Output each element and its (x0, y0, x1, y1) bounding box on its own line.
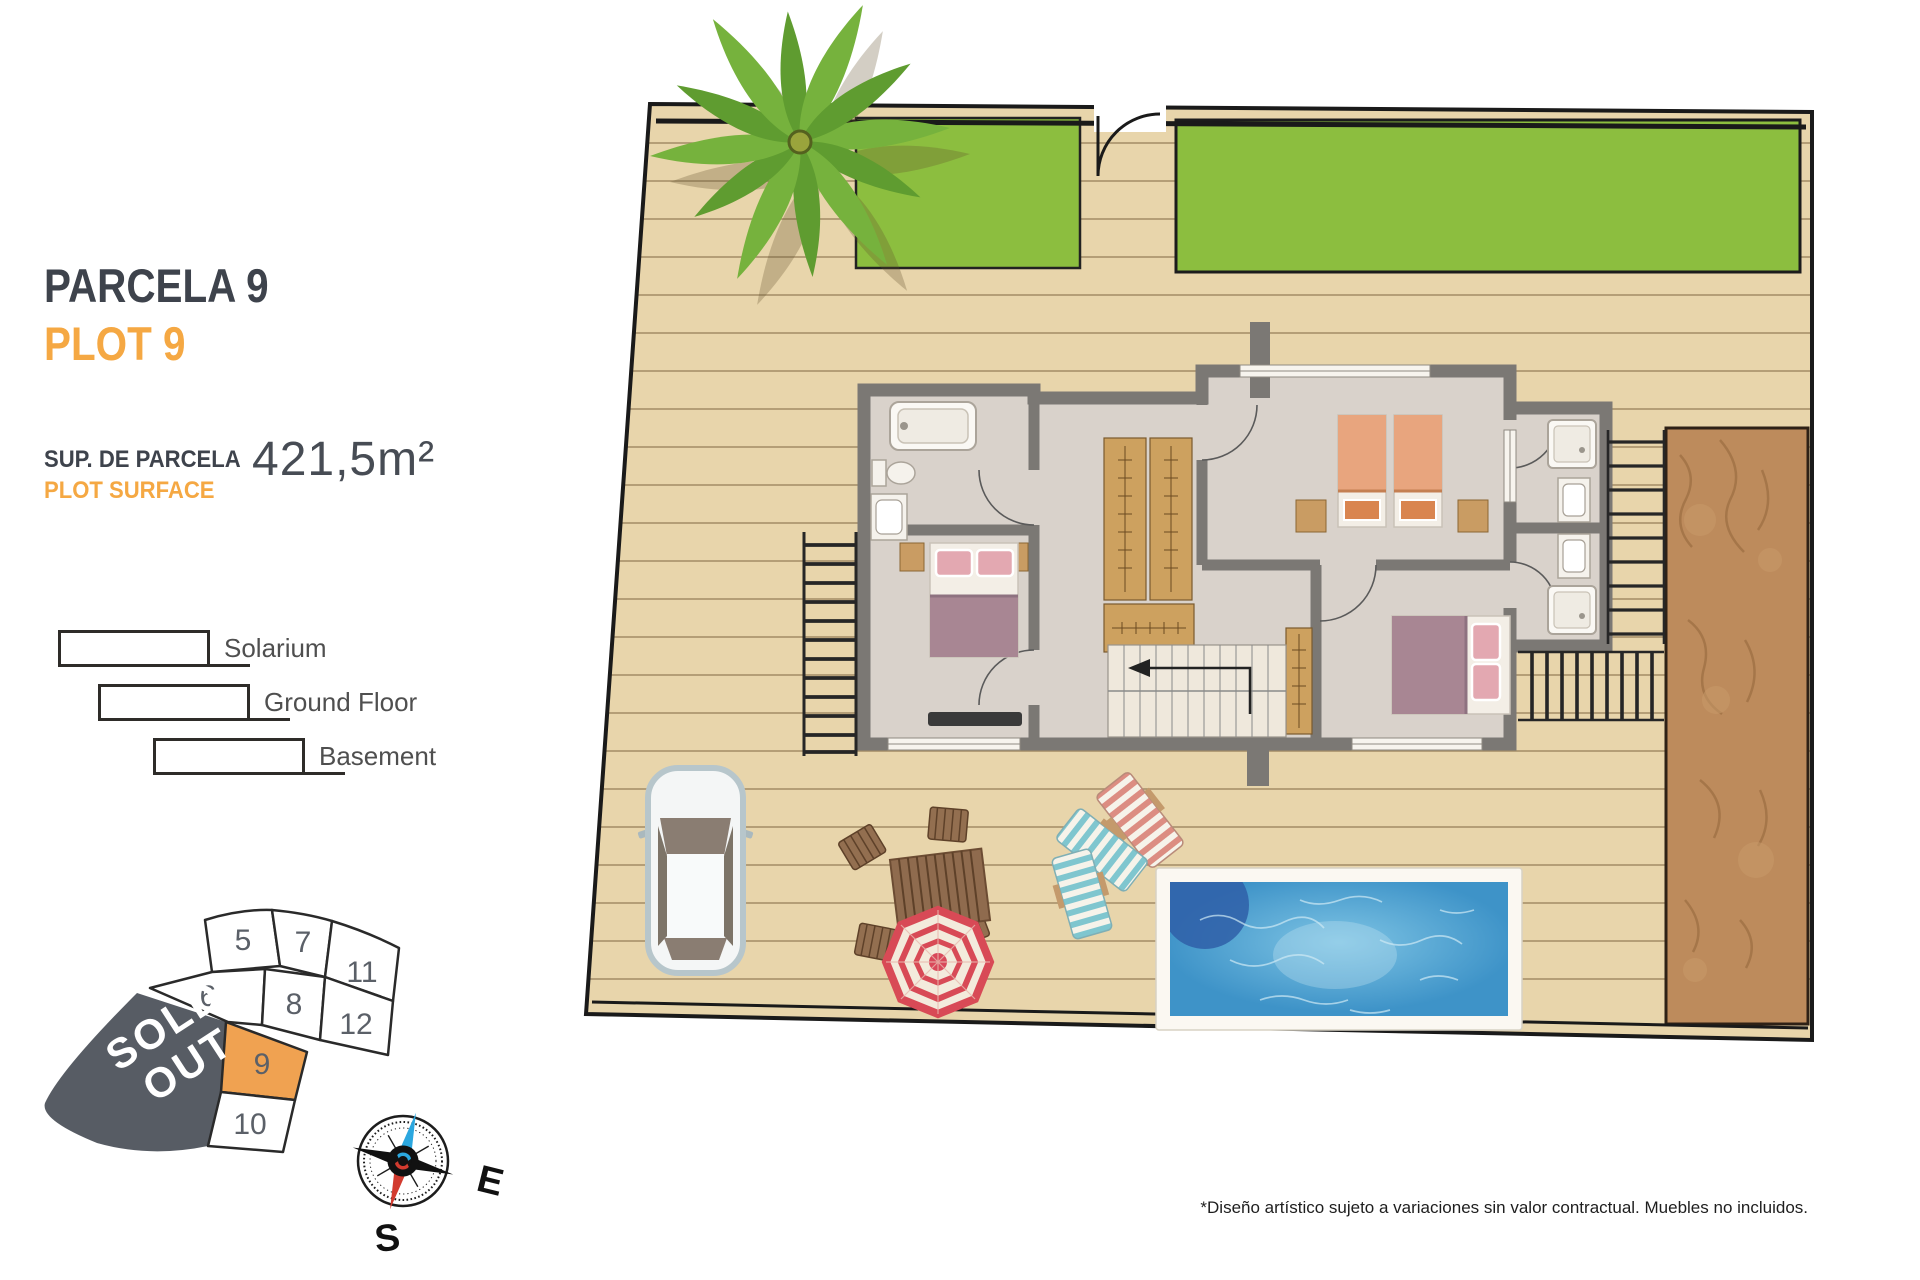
house (864, 322, 1606, 786)
dirt-area (1666, 428, 1808, 1024)
plot-minimap: 5 7 11 6 8 12 9 10 SOLD OUT (45, 910, 399, 1152)
legend-box-basement (153, 738, 305, 775)
compass-south-label: S (373, 1217, 403, 1261)
minimap-label-8: 8 (286, 988, 303, 1021)
disclaimer-text: *Diseño artístico sujeto a variaciones s… (1200, 1198, 1808, 1218)
page-title: PARCELA 9 (44, 258, 269, 313)
parasol (886, 910, 990, 1014)
twin-bed-1 (1338, 415, 1386, 527)
legend-line-solarium (58, 664, 250, 667)
legend-line-ground-floor (98, 718, 290, 721)
wall-pillar-bottom (1247, 744, 1269, 786)
legend-label-ground-floor: Ground Floor (264, 684, 417, 721)
surface-label-en: PLOT SURFACE (44, 477, 215, 505)
minimap-label-10: 10 (233, 1108, 266, 1141)
car (637, 768, 753, 973)
minimap-label-11: 11 (346, 956, 377, 989)
brochure-page: 5 7 11 6 8 12 9 10 SOLD OUT (0, 0, 1920, 1280)
internal-staircase (1108, 645, 1286, 737)
legend-box-solarium (58, 630, 210, 667)
legend-label-solarium: Solarium (224, 630, 327, 667)
legend-label-basement: Basement (319, 738, 436, 775)
minimap-label-7: 7 (295, 926, 312, 959)
minimap-label-12: 12 (339, 1008, 372, 1041)
palm-trunk (789, 131, 811, 153)
car-windshield (660, 818, 731, 856)
minimap-label-9: 9 (254, 1048, 271, 1081)
legend-line-basement (153, 772, 345, 775)
minimap-label-5: 5 (235, 924, 252, 957)
legend-box-ground-floor (98, 684, 250, 721)
surface-value: 421,5m² (252, 432, 435, 487)
tv-console (928, 712, 1022, 726)
twin-bed-2 (1394, 415, 1442, 527)
compass-east-label: E (473, 1158, 508, 1205)
wall-pillar-top (1250, 322, 1270, 398)
surface-label-es: SUP. DE PARCELA (44, 446, 241, 474)
swimming-pool (1156, 861, 1522, 1030)
page-subtitle: PLOT 9 (44, 316, 185, 371)
compass: E S (340, 1099, 508, 1261)
toilet (872, 460, 886, 486)
lawn-patch-large (1176, 120, 1800, 272)
car-rear-window (664, 938, 727, 960)
